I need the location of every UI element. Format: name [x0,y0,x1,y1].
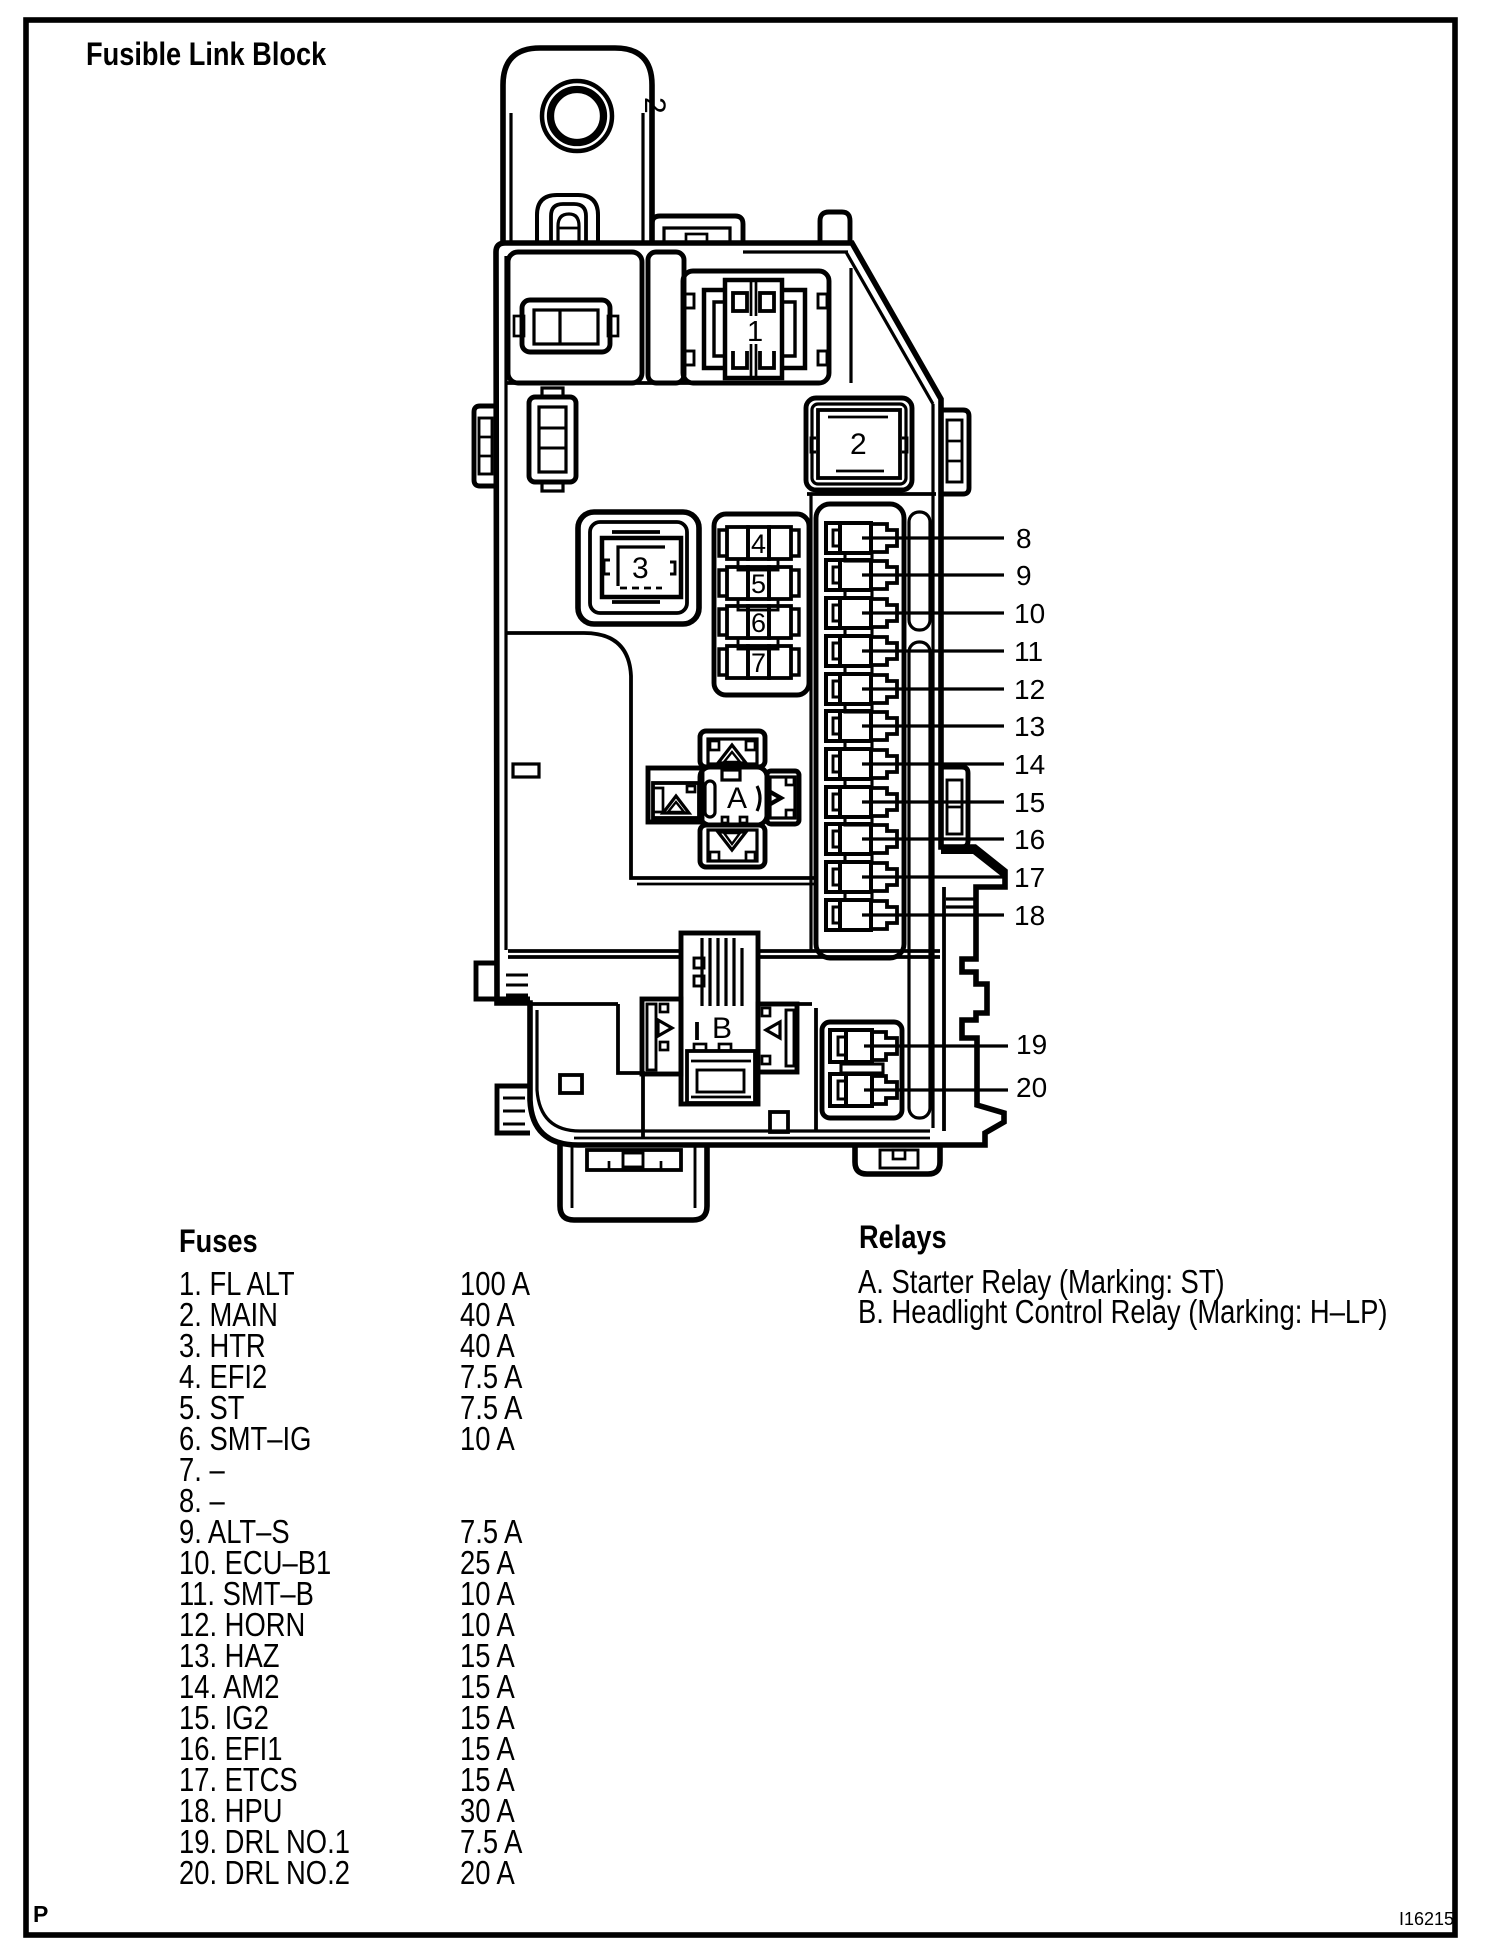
svg-text:9: 9 [1016,560,1032,591]
svg-text:10: 10 [1014,598,1045,629]
svg-text:20: 20 [1016,1072,1047,1103]
svg-text:1: 1 [747,316,763,348]
svg-text:Relays: Relays [859,1220,947,1256]
svg-text:10 A: 10 A [460,1422,516,1458]
svg-text:P: P [33,1901,48,1927]
svg-text:11: 11 [1014,636,1043,667]
svg-text:6: 6 [751,608,766,638]
svg-text:8: 8 [1016,523,1032,554]
svg-text:7: 7 [751,648,766,678]
svg-text:B: B [712,1012,732,1045]
svg-text:4: 4 [751,529,766,559]
svg-text:3: 3 [632,552,649,585]
svg-text:Fuses: Fuses [179,1224,258,1260]
svg-text:19: 19 [1016,1029,1047,1060]
svg-text:17: 17 [1014,862,1045,893]
svg-text:5: 5 [751,569,766,599]
svg-text:B. Headlight Control Relay (Ma: B. Headlight Control Relay (Marking: H–L… [858,1295,1388,1331]
svg-text:I16215: I16215 [1399,1909,1454,1929]
svg-text:20 A: 20 A [460,1856,516,1892]
svg-text:14: 14 [1014,749,1045,780]
svg-text:18: 18 [1014,900,1045,931]
svg-text:20. DRL NO.2: 20. DRL NO.2 [179,1856,350,1892]
svg-text:2: 2 [850,428,867,461]
svg-text:12: 12 [1014,674,1045,705]
svg-text:16: 16 [1014,824,1045,855]
svg-text:13: 13 [1014,711,1045,742]
svg-text:A: A [727,782,747,815]
svg-text:Fusible Link Block: Fusible Link Block [86,37,327,73]
svg-text:15: 15 [1014,787,1045,818]
svg-text:2: 2 [638,97,671,114]
